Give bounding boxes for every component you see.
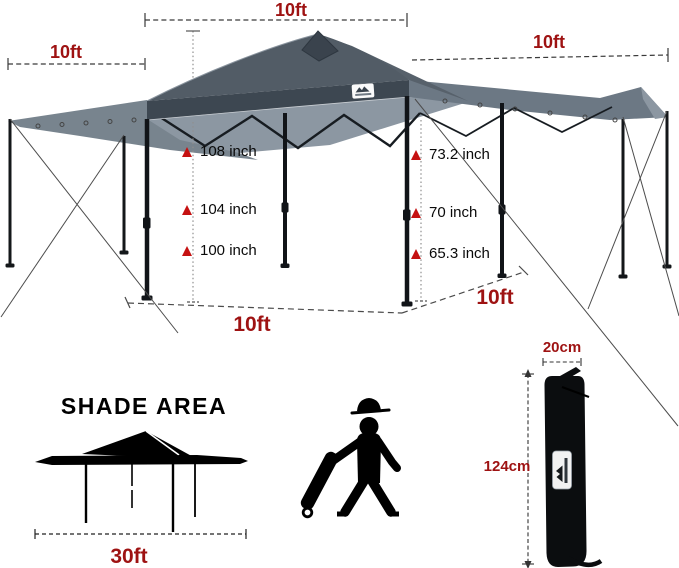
eave-height-label-2: 70 inch (411, 205, 477, 220)
left-awning-width-label: 10ft (50, 43, 82, 61)
peak-height-label-3: 100 inch (182, 243, 257, 258)
right-awning (409, 80, 668, 120)
eave-height-label-1: 73.2 inch (411, 147, 490, 162)
base-width-label: 10ft (233, 314, 270, 335)
canopy-tent-illustration (1, 31, 679, 426)
top-width-label: 10ft (275, 1, 307, 19)
red-arrow-icon (182, 246, 192, 256)
bag-width-label: 20cm (543, 340, 581, 355)
peak-height-label-2: 104 inch (182, 202, 257, 217)
red-arrow-icon (182, 147, 192, 157)
canopy-dimensions-diagram: 10ft 10ft 10ft 10ft 10ft 108 inch 104 in… (0, 0, 679, 568)
mountain-logo-icon (553, 451, 572, 489)
shade-width-dimension-line (35, 529, 246, 539)
base-depth-label: 10ft (476, 287, 513, 308)
carry-bag-illustration (522, 358, 601, 568)
mountain-logo-icon (352, 83, 375, 99)
shade-area-width-label: 30ft (110, 546, 147, 567)
peak-height-label-1: 108 inch (182, 144, 257, 159)
diagram-graphics (0, 0, 679, 568)
eave-height-label-3: 65.3 inch (411, 246, 490, 261)
right-awning-width-label: 10ft (533, 33, 565, 51)
shade-area-title: SHADE AREA (61, 395, 227, 418)
shade-area-silhouette (35, 431, 248, 539)
worker-pulling-wheeled-bag-icon (299, 398, 399, 517)
red-arrow-icon (182, 205, 192, 215)
red-arrow-icon (411, 208, 421, 218)
red-arrow-icon (411, 249, 421, 259)
bag-height-label: 124cm (484, 459, 531, 474)
red-arrow-icon (411, 150, 421, 160)
